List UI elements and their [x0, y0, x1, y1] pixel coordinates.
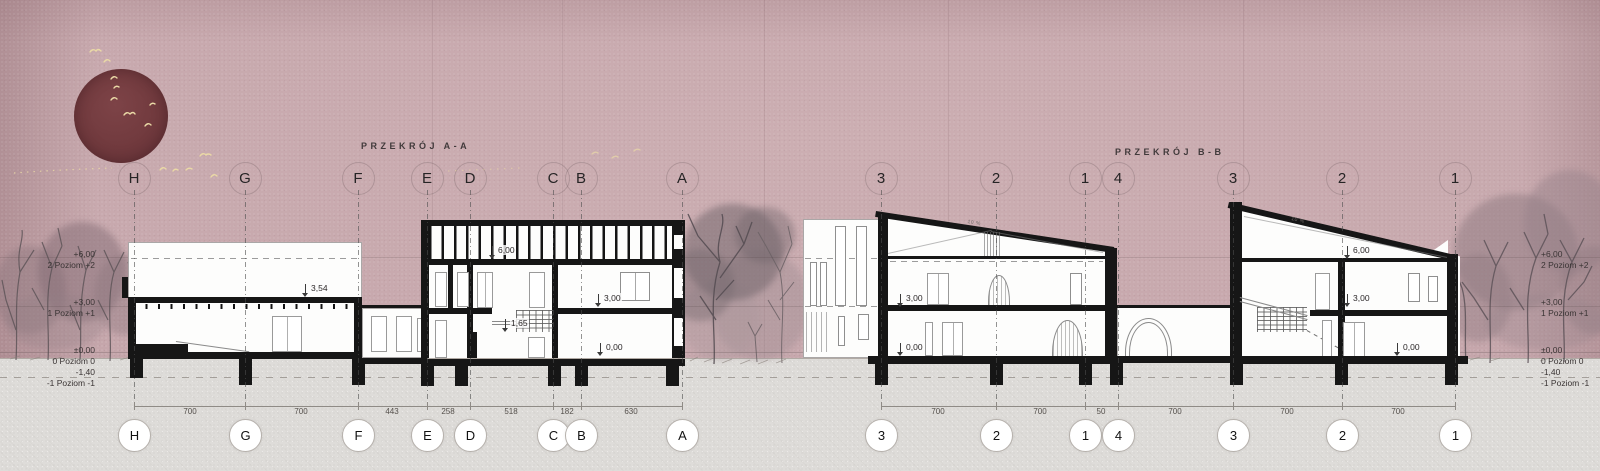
door — [396, 316, 412, 352]
elevation-label: 3,00 — [905, 293, 924, 303]
grid-label-top: G — [239, 170, 251, 187]
wall — [448, 265, 453, 308]
grid-bubble: H — [118, 419, 151, 452]
door — [477, 272, 493, 308]
level-annotation-right: ±0,000 Poziom 0 — [1541, 345, 1600, 366]
floor-slab — [1310, 310, 1450, 316]
dim-tick — [358, 402, 359, 410]
floor-slab — [362, 358, 427, 364]
grid-bubble: B — [565, 419, 598, 452]
grid-line-1 — [1085, 190, 1086, 404]
truss-post — [984, 232, 1000, 256]
elevation-label: 0,00 — [605, 342, 624, 352]
roof-truss-mullions — [429, 226, 672, 259]
elevation-label: 3,00 — [603, 293, 622, 303]
dim-tick — [1118, 402, 1119, 410]
door — [529, 272, 545, 308]
grid-line-D — [470, 190, 471, 404]
level-annotation-right: +3,001 Poziom +1 — [1541, 297, 1600, 318]
grid-bubble: 4 — [1102, 419, 1135, 452]
door — [925, 322, 933, 356]
door — [942, 322, 963, 356]
dimension-value: 700 — [1033, 407, 1046, 416]
dim-tick — [134, 402, 135, 410]
grid-label-top: 1 — [1451, 170, 1459, 187]
door — [1322, 320, 1332, 358]
window — [1428, 276, 1438, 302]
dim-tick — [682, 402, 683, 410]
wall — [1447, 254, 1458, 358]
dim-tick — [245, 402, 246, 410]
grid-bubble: A — [666, 419, 699, 452]
roof-edge — [362, 305, 427, 308]
level-annotation-right: +6,002 Poziom +2 — [1541, 249, 1600, 270]
dim-tick — [581, 402, 582, 410]
grid-line-2 — [996, 190, 997, 404]
wall — [1105, 248, 1117, 358]
grid-label-top: E — [422, 170, 432, 187]
floor-slab — [1117, 356, 1233, 363]
dim-tick — [470, 402, 471, 410]
floor-slab — [429, 308, 492, 314]
level-annotation-left: ±0,000 Poziom 0 — [0, 345, 95, 366]
window — [1408, 273, 1420, 302]
window — [835, 226, 846, 306]
grid-bubble: 2 — [980, 419, 1013, 452]
tree-cluster-middle — [666, 204, 810, 364]
ground-slab — [1230, 356, 1468, 364]
dimension-value: 443 — [385, 407, 398, 416]
grid-line-B — [581, 190, 582, 404]
elevation-label: 0,00 — [1402, 342, 1421, 352]
door — [457, 272, 469, 307]
foundation-pier — [1230, 364, 1243, 385]
grid-bubble: 2 — [1326, 419, 1359, 452]
grid-bubble: G — [229, 419, 262, 452]
dim-tick — [881, 402, 882, 410]
dim-tick — [1085, 402, 1086, 410]
grid-label-top: 4 — [1114, 170, 1122, 187]
grid-line-2b — [1342, 190, 1343, 404]
dimension-value: 258 — [441, 407, 454, 416]
dimension-value: 700 — [931, 407, 944, 416]
grid-bubble: F — [342, 419, 375, 452]
roof-edge — [1117, 305, 1233, 308]
section-a-title: PRZEKRÓJ A-A — [361, 141, 470, 151]
grid-label-top: 1 — [1081, 170, 1089, 187]
door — [927, 273, 949, 305]
dimension-value: 700 — [294, 407, 307, 416]
dim-tick — [1233, 402, 1234, 410]
dimension-value: 50 — [1097, 407, 1106, 416]
level-annotation-left: +3,001 Poziom +1 — [0, 297, 95, 318]
door — [1315, 273, 1330, 310]
elevation-label: 1,65 — [510, 318, 529, 328]
dimension-value: 700 — [1280, 407, 1293, 416]
foundation-pier — [130, 359, 143, 378]
window — [856, 226, 867, 306]
elevation-label: 6,00 — [1352, 245, 1371, 255]
staircase — [1257, 307, 1307, 332]
grid-line-1b — [1455, 190, 1456, 404]
grid-line-A — [682, 190, 683, 404]
grid-line-F — [358, 190, 359, 404]
door — [1343, 322, 1365, 358]
dimension-line-a — [134, 406, 682, 407]
grid-bubble: 3 — [1217, 419, 1250, 452]
grid-bubble: 1 — [1069, 419, 1102, 452]
door — [528, 337, 545, 358]
grid-bubble: 1 — [1439, 419, 1472, 452]
grid-bubble: E — [411, 419, 444, 452]
level-annotation-left: -1,40-1 Poziom -1 — [0, 367, 95, 388]
grid-label-top: A — [677, 170, 687, 187]
dimension-value: 182 — [560, 407, 573, 416]
grid-label-top: D — [465, 170, 476, 187]
grid-label-top: 2 — [992, 170, 1000, 187]
grid-label-top: F — [353, 170, 362, 187]
window — [858, 314, 869, 340]
dim-tick — [996, 402, 997, 410]
louvers — [806, 312, 830, 352]
grid-bubble: 3 — [865, 419, 898, 452]
dimension-value: 630 — [624, 407, 637, 416]
grid-line-G — [245, 190, 246, 404]
architectural-board: 3,54 — [0, 0, 1600, 471]
grid-label-top: C — [548, 170, 559, 187]
grid-line-E — [427, 190, 428, 404]
grid-label-top: 3 — [1229, 170, 1237, 187]
grid-label-top: H — [129, 170, 140, 187]
window — [1070, 273, 1082, 305]
section-b-title: PRZEKRÓJ B-B — [1115, 147, 1225, 157]
foundation-pier — [1445, 364, 1458, 385]
wall — [878, 214, 888, 358]
foundation-pier — [455, 366, 468, 386]
window — [820, 262, 827, 306]
elevation-label: 3,54 — [310, 283, 329, 293]
level-annotation-left: +6,002 Poziom +2 — [0, 249, 95, 270]
grid-label-top: 2 — [1338, 170, 1346, 187]
wall — [472, 332, 477, 358]
elevation-label: 0,00 — [905, 342, 924, 352]
grid-line-C — [553, 190, 554, 404]
dim-tick — [1342, 402, 1343, 410]
grid-line-3 — [881, 190, 882, 404]
elevation-label: 3,00 — [1352, 293, 1371, 303]
grid-line-4 — [1118, 190, 1119, 404]
foundation-pier — [1110, 364, 1123, 385]
facade-dashed-line — [805, 306, 877, 307]
wall — [1230, 202, 1242, 358]
door — [371, 316, 387, 352]
door — [435, 320, 447, 358]
dim-tick — [1455, 402, 1456, 410]
wall — [122, 277, 128, 298]
elevation-label: 6,00 — [497, 245, 516, 255]
dimension-value: 700 — [1168, 407, 1181, 416]
grid-line-3b — [1233, 190, 1234, 404]
foundation-pier — [666, 366, 679, 386]
dim-tick — [427, 402, 428, 410]
level-annotation-right: -1,40-1 Poziom -1 — [1541, 367, 1600, 388]
grid-line-H — [134, 190, 135, 404]
dim-tick — [553, 402, 554, 410]
grid-label-top: B — [576, 170, 586, 187]
door — [435, 272, 447, 307]
dimension-value: 700 — [183, 407, 196, 416]
grid-bubble: D — [454, 419, 487, 452]
window — [620, 272, 650, 301]
window — [810, 262, 817, 306]
grid-label-top: 3 — [877, 170, 885, 187]
window — [838, 316, 845, 346]
door — [272, 316, 302, 352]
dimension-value: 518 — [504, 407, 517, 416]
dimension-value: 700 — [1391, 407, 1404, 416]
floor-slab — [552, 308, 672, 314]
foundation-pier — [548, 366, 561, 386]
